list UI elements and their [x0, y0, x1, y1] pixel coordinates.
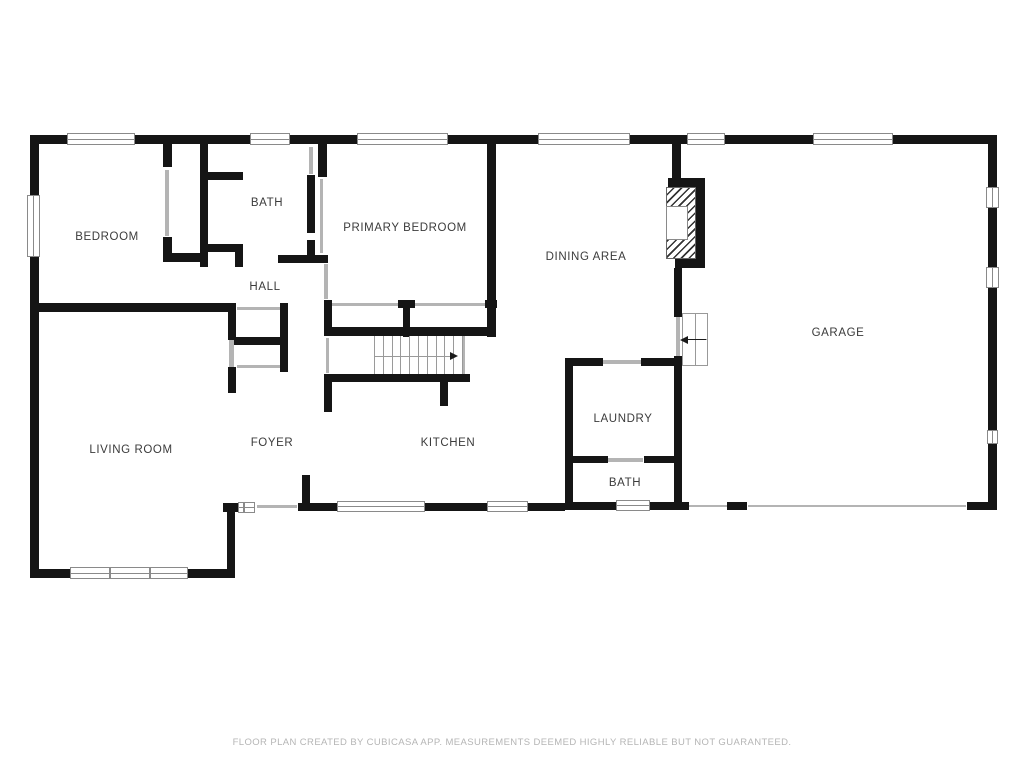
- window-pane-line: [539, 139, 629, 140]
- door-opening: [237, 365, 280, 368]
- window: [238, 502, 255, 513]
- window-pane-line: [617, 505, 649, 506]
- window: [616, 500, 650, 511]
- door-opening: [463, 336, 465, 374]
- room-label-primary-bedroom: PRIMARY BEDROOM: [343, 222, 467, 234]
- window: [487, 501, 528, 512]
- wall-segment: [988, 135, 997, 187]
- wall-segment: [988, 443, 997, 510]
- window: [27, 195, 40, 257]
- door-opening: [324, 264, 328, 299]
- room-label-bath-lower: BATH: [609, 477, 641, 489]
- window-pane-line: [992, 431, 993, 443]
- wall-segment: [235, 244, 243, 267]
- window: [987, 430, 998, 444]
- window: [67, 133, 135, 145]
- wall-segment: [324, 327, 487, 336]
- disclaimer-text: FLOOR PLAN CREATED BY CUBICASA APP. MEAS…: [233, 737, 792, 748]
- wall-segment: [672, 143, 681, 178]
- fireplace-firebox: [666, 206, 688, 240]
- wall-segment: [30, 135, 39, 195]
- wall-segment: [278, 255, 328, 263]
- window: [687, 133, 725, 145]
- window-pane-line: [688, 139, 724, 140]
- wall-segment: [565, 456, 608, 463]
- window-pane-line: [488, 506, 527, 507]
- window-pane-line: [358, 139, 447, 140]
- stairs-direction-arrow: [450, 352, 458, 360]
- room-label-laundry: LAUNDRY: [594, 413, 653, 425]
- wall-segment: [330, 374, 470, 382]
- room-label-garage: GARAGE: [812, 327, 865, 339]
- room-label-living-room: LIVING ROOM: [89, 444, 172, 456]
- door-opening: [689, 505, 727, 507]
- door-opening: [320, 179, 323, 253]
- wall-segment: [30, 569, 70, 578]
- wall-segment: [30, 303, 228, 312]
- wall-segment: [565, 358, 573, 507]
- stair-tread: [383, 336, 384, 374]
- wall-segment: [674, 356, 682, 510]
- wall-segment: [967, 502, 997, 510]
- wall-segment: [302, 475, 310, 505]
- door-opening: [165, 170, 169, 236]
- wall-segment: [398, 300, 415, 308]
- door-opening: [415, 303, 485, 306]
- wall-segment: [318, 143, 327, 177]
- window: [813, 133, 893, 145]
- door-opening: [602, 360, 641, 364]
- window: [357, 133, 448, 145]
- window-mullion: [243, 503, 245, 512]
- stair-tread: [400, 336, 401, 374]
- wall-segment: [988, 208, 997, 267]
- room-label-hall: HALL: [249, 281, 280, 293]
- wall-segment: [674, 268, 682, 317]
- wall-segment: [725, 135, 813, 144]
- wall-segment: [675, 259, 705, 268]
- room-label-dining-area: DINING AREA: [546, 251, 627, 263]
- wall-segment: [163, 143, 172, 167]
- window-pane-line: [338, 506, 424, 507]
- stair-tread: [462, 336, 463, 374]
- wall-segment: [280, 303, 288, 372]
- window: [986, 187, 999, 208]
- stair-tread: [418, 336, 419, 374]
- wall-segment: [988, 288, 997, 430]
- floor-plan-canvas: BEDROOMBATHPRIMARY BEDROOMHALLDINING ARE…: [0, 0, 1024, 768]
- stair-tread: [427, 336, 428, 374]
- garage-entry-arrow: [680, 336, 688, 344]
- wall-segment: [440, 382, 448, 406]
- stair-tread: [409, 336, 410, 374]
- window-pane-line: [239, 507, 254, 508]
- wall-segment: [227, 503, 235, 578]
- window: [337, 501, 425, 512]
- stair-center-line: [374, 356, 450, 357]
- stair-tread: [392, 336, 393, 374]
- room-label-kitchen: KITCHEN: [421, 437, 476, 449]
- wall-segment: [641, 358, 675, 366]
- wall-segment: [307, 175, 315, 233]
- stair-tread: [374, 336, 375, 374]
- wall-segment: [727, 502, 747, 510]
- window-mullion: [149, 568, 151, 578]
- room-label-bedroom: BEDROOM: [75, 231, 139, 243]
- window-mullion: [109, 568, 111, 578]
- wall-segment: [135, 135, 250, 144]
- door-opening: [331, 303, 398, 306]
- garage-entry-arrow-line: [688, 339, 706, 340]
- door-opening: [748, 505, 966, 507]
- window-pane-line: [68, 139, 134, 140]
- door-opening: [237, 307, 280, 310]
- room-label-bath-upper: BATH: [251, 197, 283, 209]
- window: [70, 567, 188, 579]
- stair-tread: [444, 336, 445, 374]
- door-opening: [309, 147, 313, 174]
- wall-segment: [205, 172, 243, 180]
- wall-segment: [228, 303, 236, 340]
- wall-segment: [485, 300, 497, 308]
- wall-segment: [324, 374, 332, 412]
- window: [538, 133, 630, 145]
- window-pane-line: [992, 268, 993, 287]
- window-pane-line: [992, 188, 993, 207]
- wall-segment: [528, 503, 565, 511]
- window-pane-line: [71, 573, 187, 574]
- door-opening: [257, 505, 297, 508]
- floor-plan: [0, 0, 1024, 768]
- door-opening: [326, 338, 329, 373]
- window: [986, 267, 999, 288]
- wall-segment: [893, 135, 997, 144]
- wall-segment: [228, 367, 236, 393]
- wall-segment: [696, 178, 705, 268]
- wall-segment: [425, 503, 487, 511]
- window-pane-line: [33, 196, 34, 256]
- door-opening: [607, 458, 643, 462]
- window-pane-line: [814, 139, 892, 140]
- wall-segment: [163, 253, 205, 262]
- window-pane-line: [251, 139, 289, 140]
- window: [250, 133, 290, 145]
- wall-segment: [644, 456, 675, 463]
- room-label-foyer: FOYER: [251, 437, 294, 449]
- stair-tread: [436, 336, 437, 374]
